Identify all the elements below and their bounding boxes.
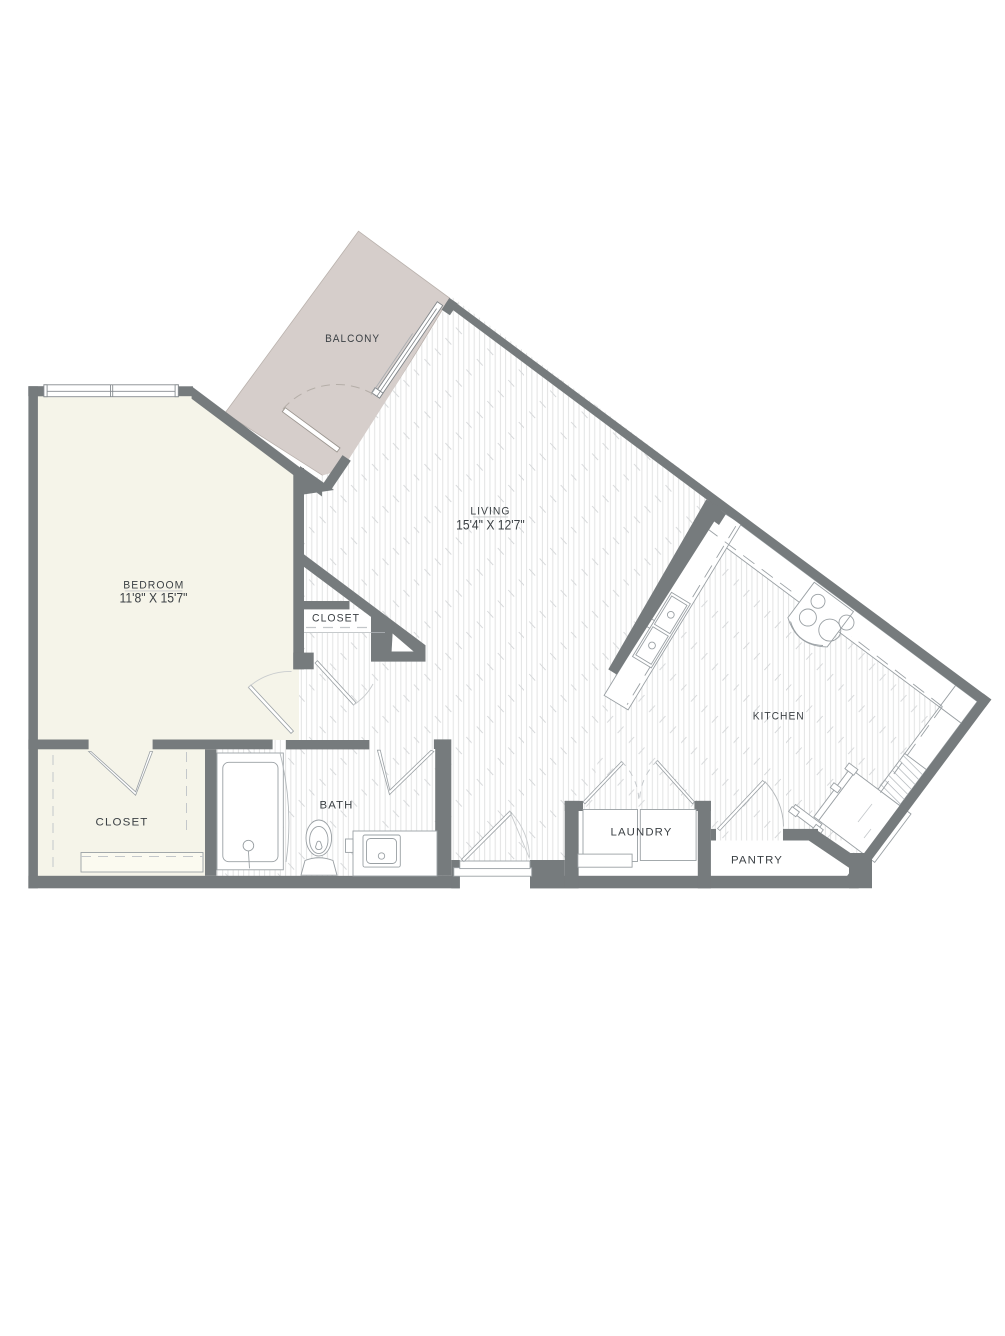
svg-text:PANTRY: PANTRY	[731, 855, 783, 867]
svg-text:LAUNDRY: LAUNDRY	[611, 827, 673, 839]
svg-text:KITCHEN: KITCHEN	[753, 711, 805, 723]
svg-text:BALCONY: BALCONY	[325, 333, 380, 345]
svg-text:CLOSET: CLOSET	[312, 613, 360, 625]
svg-text:CLOSET: CLOSET	[96, 817, 149, 829]
svg-text:11'8" X 15'7": 11'8" X 15'7"	[120, 589, 188, 605]
svg-text:BATH: BATH	[320, 800, 354, 812]
svg-text:15'4" X 12'7": 15'4" X 12'7"	[456, 517, 525, 533]
svg-text:LIVING: LIVING	[470, 505, 510, 517]
